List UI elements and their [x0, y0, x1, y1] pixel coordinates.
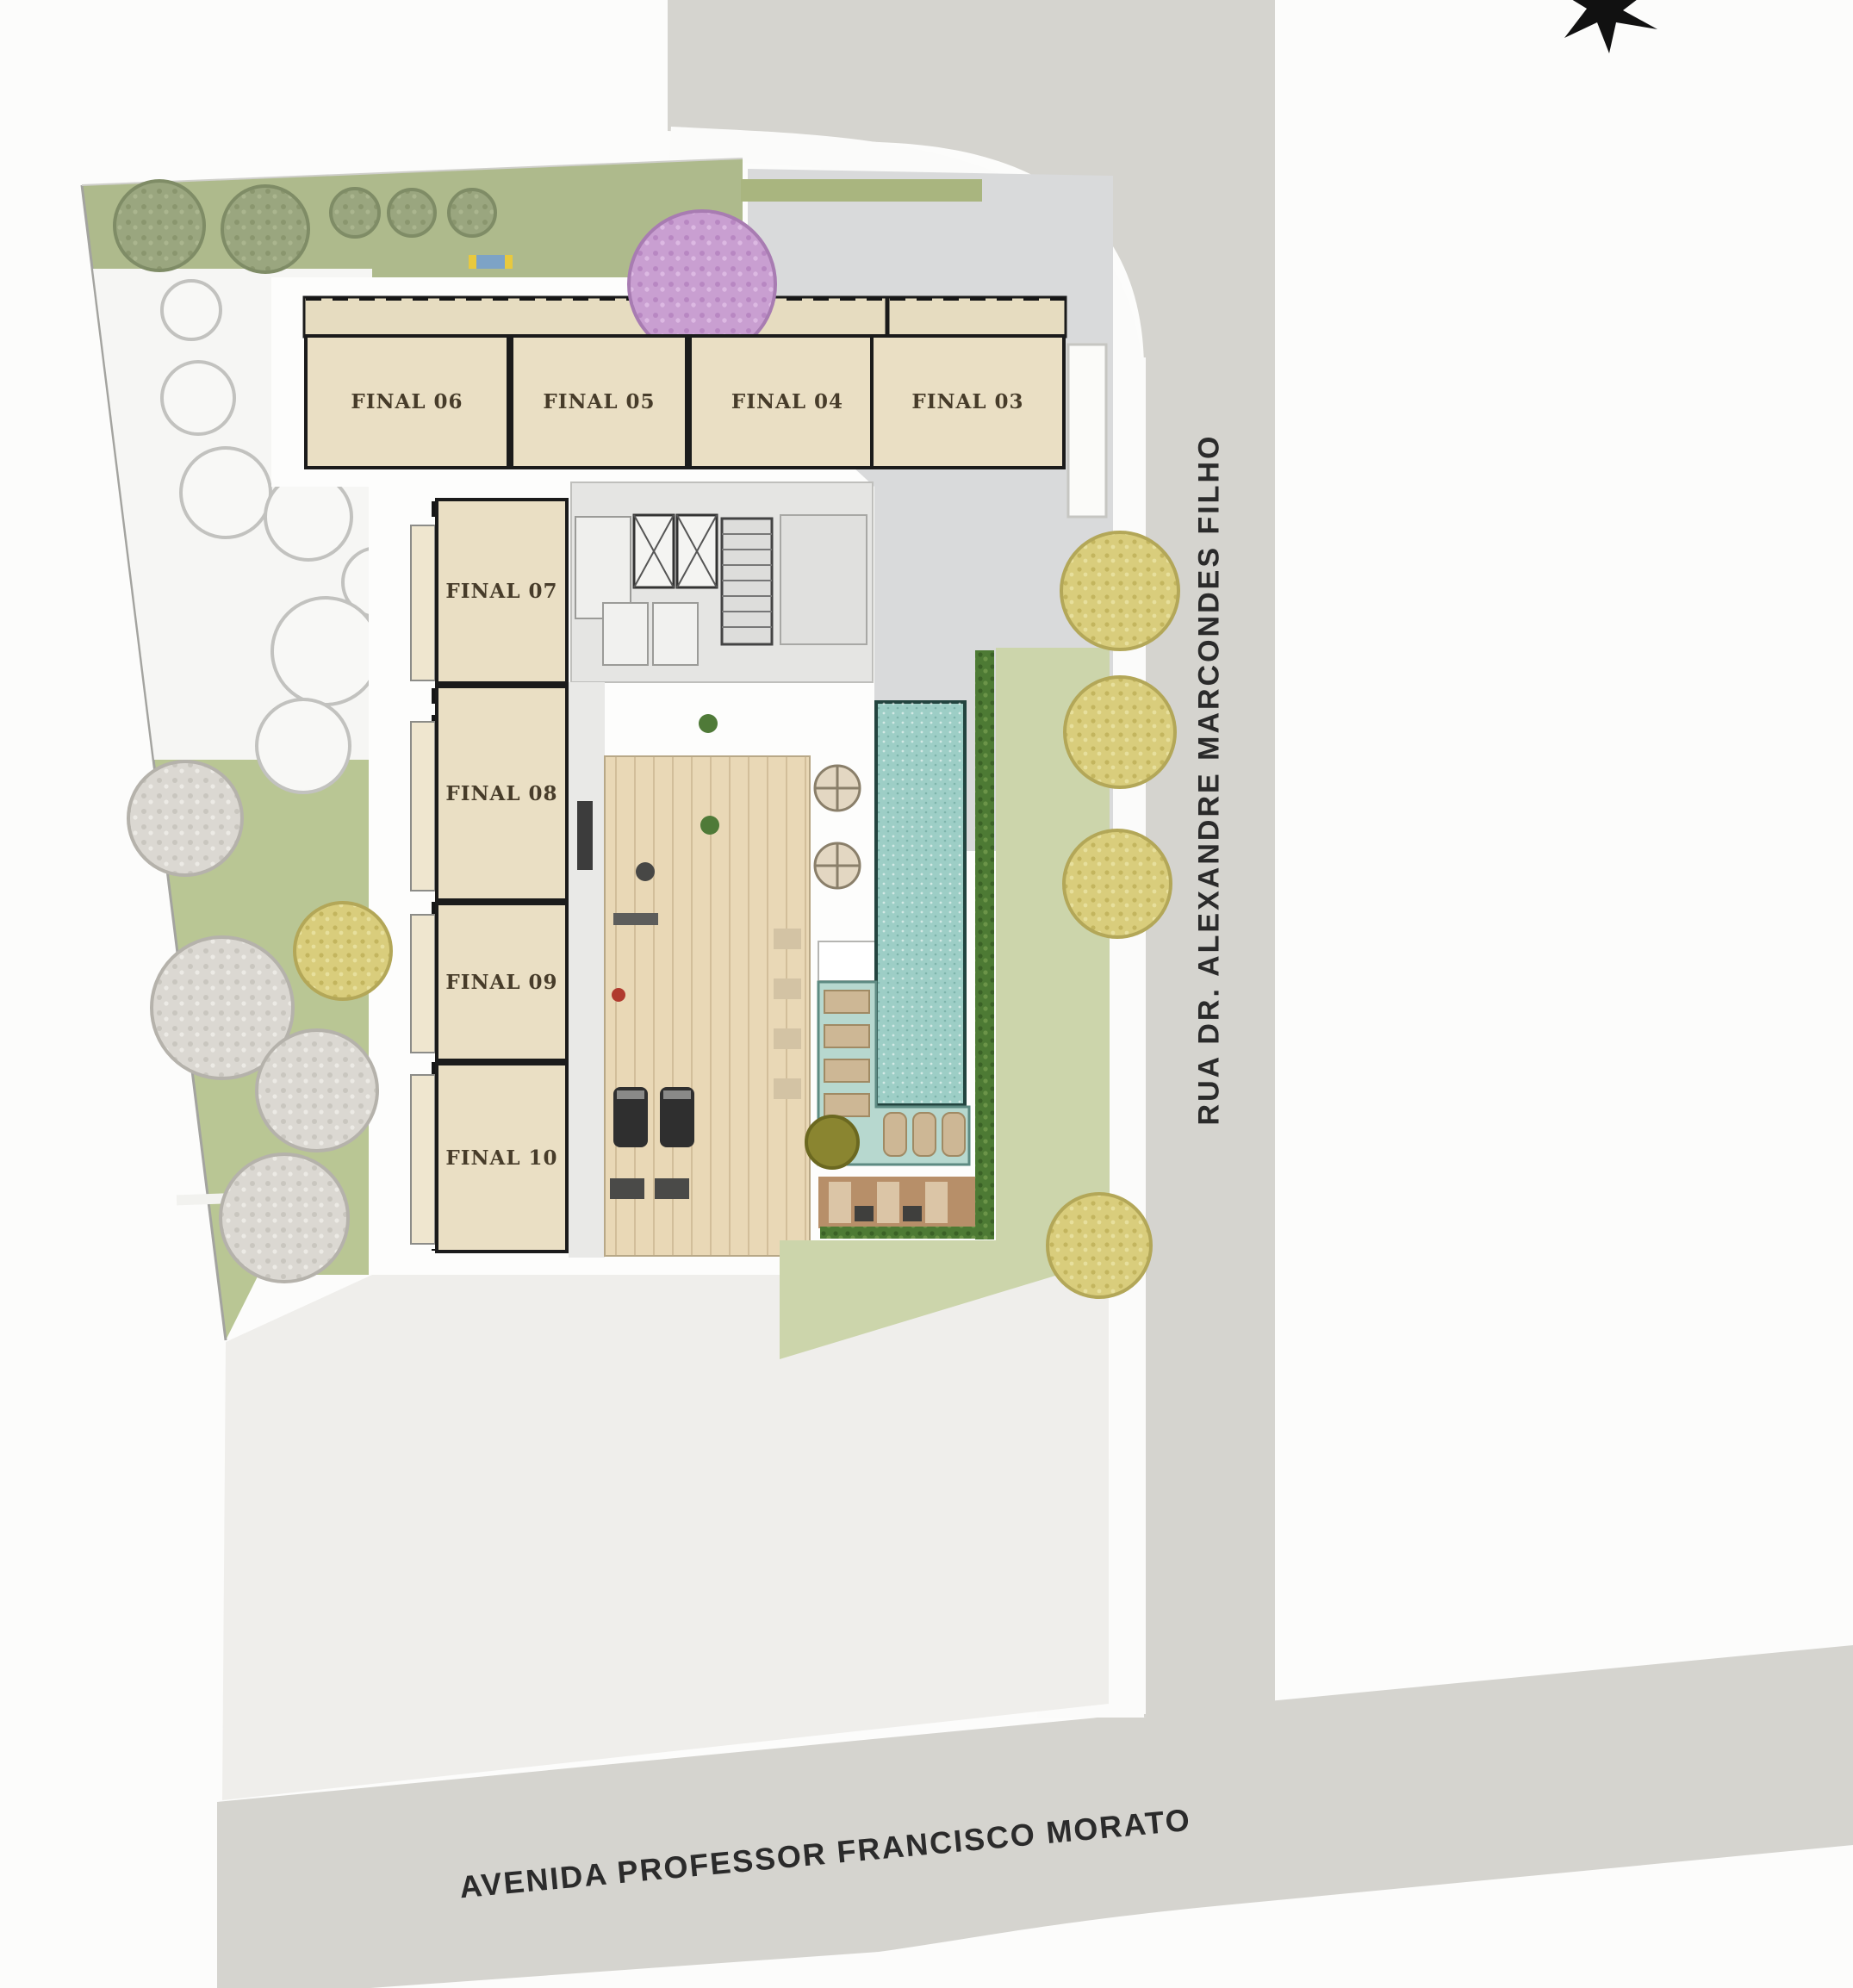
unit-final-04: FINAL 04	[688, 334, 886, 469]
unit-final-08: FINAL 08	[435, 685, 569, 902]
balconies-left	[411, 525, 435, 1244]
hall-room-b	[653, 603, 698, 665]
site-plan-drawing	[0, 0, 1853, 1988]
site-plan: FINAL 06 FINAL 05 FINAL 04 FINAL 03 FINA…	[0, 0, 1853, 1988]
unit-final-09: FINAL 09	[435, 902, 569, 1062]
unit-label: FINAL 05	[543, 390, 655, 413]
unit-label: FINAL 04	[731, 390, 843, 413]
corridor	[569, 682, 605, 1258]
hedge-row-south	[820, 1227, 979, 1239]
street-name-rua: RUA DR. ALEXANDRE MARCONDES FILHO	[1193, 434, 1227, 1126]
pool-water-texture	[876, 702, 965, 1105]
unit-label: FINAL 07	[445, 580, 557, 603]
hedge-top	[741, 179, 982, 202]
unit-label: FINAL 09	[445, 971, 557, 994]
unit-label: FINAL 08	[445, 782, 557, 805]
staircase	[722, 519, 772, 644]
core-room	[780, 515, 867, 644]
unit-final-05: FINAL 05	[510, 334, 688, 469]
unit-final-06: FINAL 06	[304, 334, 510, 469]
terrace-strip-b	[888, 297, 1066, 337]
wood-deck-loungers	[829, 1182, 948, 1223]
hedge-column	[975, 650, 994, 1239]
hall-room-a	[603, 603, 648, 665]
paving-south	[222, 1242, 1109, 1800]
deck-tree	[806, 1116, 858, 1168]
unit-final-07: FINAL 07	[435, 498, 569, 685]
terrace-strip-a	[304, 297, 886, 337]
north-star-icon	[1556, 0, 1657, 53]
unit-final-10: FINAL 10	[435, 1062, 569, 1253]
unit-label: FINAL 06	[351, 390, 463, 413]
unit-label: FINAL 03	[911, 390, 1023, 413]
unit-final-03: FINAL 03	[870, 334, 1066, 469]
unit-label: FINAL 10	[445, 1146, 557, 1170]
pool-changing-room	[818, 941, 876, 981]
yellow-tree-left	[295, 903, 391, 999]
playground-bench	[469, 255, 513, 269]
balcony-right-final03	[1068, 345, 1106, 517]
